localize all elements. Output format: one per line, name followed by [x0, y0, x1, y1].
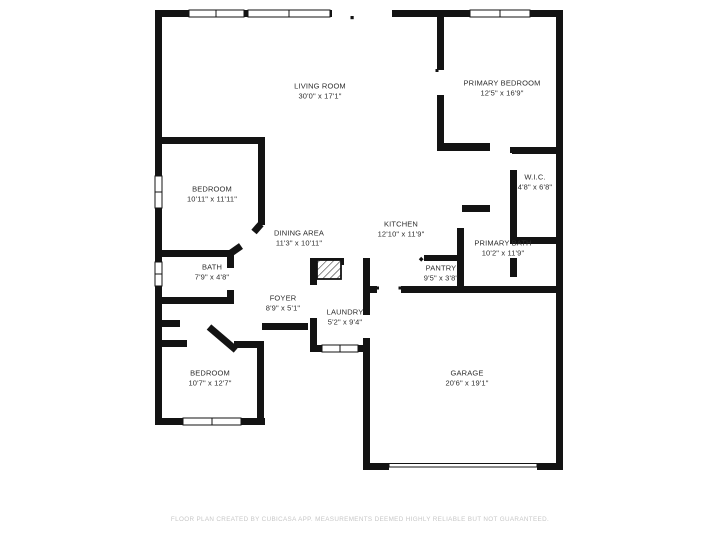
window-bath: [155, 262, 162, 286]
room-dims: 9'5" x 3'8": [424, 273, 458, 283]
room-dims: 30'0" x 17'1": [294, 91, 346, 101]
room-label-bedroom-top: BEDROOM 10'11" x 11'11": [187, 185, 237, 204]
room-label-garage: GARAGE 20'6" x 19'1": [445, 369, 488, 388]
garage-entry-marker-b: [399, 287, 402, 290]
window-bedroom-top: [155, 176, 162, 208]
window-living-room-right: [248, 10, 330, 17]
footer-disclaimer: FLOOR PLAN CREATED BY CUBICASA APP. MEAS…: [171, 516, 549, 523]
window-primary-bedroom: [470, 10, 530, 17]
room-label-primary-bedroom: PRIMARY BEDROOM 12'5" x 16'9": [464, 79, 541, 98]
room-label-bedroom-bottom: BEDROOM 10'7" x 12'7": [188, 369, 231, 388]
room-name: BEDROOM: [188, 369, 231, 379]
opening-markers: [351, 16, 439, 290]
room-label-kitchen: KITCHEN 12'10" x 11'9": [378, 220, 425, 239]
room-name: BATH: [195, 263, 229, 273]
window-bedroom-bottom: [183, 418, 241, 425]
room-name: PRIMARY BATH: [474, 239, 531, 249]
floor-plan: LIVING ROOM 30'0" x 17'1" PRIMARY BEDROO…: [0, 0, 720, 540]
room-name: W.I.C.: [518, 173, 552, 183]
utility-hatch-box: [317, 260, 341, 279]
room-label-bath: BATH 7'9" x 4'8": [195, 263, 229, 282]
room-dims: 7'9" x 4'8": [195, 272, 229, 282]
room-dims: 12'5" x 16'9": [464, 88, 541, 98]
room-name: FOYER: [266, 294, 300, 304]
pantry-door-marker: [419, 257, 424, 262]
room-label-wic: W.I.C. 4'8" x 6'8": [518, 173, 552, 192]
windows: [155, 10, 530, 425]
window-living-room-left: [189, 10, 244, 17]
room-name: GARAGE: [445, 369, 488, 379]
primary-door-marker: [436, 69, 439, 72]
room-dims: 20'6" x 19'1": [445, 378, 488, 388]
room-label-primary-bath: PRIMARY BATH 10'2" x 11'9": [474, 239, 531, 258]
floor-plan-drawing: [0, 0, 720, 540]
garage-door: [389, 464, 537, 468]
room-name: LIVING ROOM: [294, 82, 346, 92]
diagonal-walls: [209, 224, 261, 350]
room-label-foyer: FOYER 8'9" x 5'1": [266, 294, 300, 313]
room-dims: 10'7" x 12'7": [188, 378, 231, 388]
room-label-pantry: PANTRY 9'5" x 3'8": [424, 264, 458, 283]
room-dims: 4'8" x 6'8": [518, 182, 552, 192]
window-laundry: [322, 345, 358, 352]
top-opening-marker: [351, 16, 354, 19]
room-dims: 10'2" x 11'9": [474, 248, 531, 258]
garage-entry-marker-a: [376, 287, 379, 290]
interior-walls: [155, 10, 563, 347]
room-name: PRIMARY BEDROOM: [464, 79, 541, 89]
room-name: KITCHEN: [378, 220, 425, 230]
room-dims: 12'10" x 11'9": [378, 229, 425, 239]
room-label-living-room: LIVING ROOM 30'0" x 17'1": [294, 82, 346, 101]
room-dims: 10'11" x 11'11": [187, 194, 237, 204]
room-name: LAUNDRY: [327, 308, 364, 318]
room-dims: 5'2" x 9'4": [327, 317, 364, 327]
room-name: BEDROOM: [187, 185, 237, 195]
room-name: PANTRY: [424, 264, 458, 274]
room-dims: 11'3" x 10'11": [274, 238, 324, 248]
room-name: DINING AREA: [274, 229, 324, 239]
room-dims: 8'9" x 5'1": [266, 303, 300, 313]
room-label-dining-area: DINING AREA 11'3" x 10'11": [274, 229, 324, 248]
room-label-laundry: LAUNDRY 5'2" x 9'4": [327, 308, 364, 327]
